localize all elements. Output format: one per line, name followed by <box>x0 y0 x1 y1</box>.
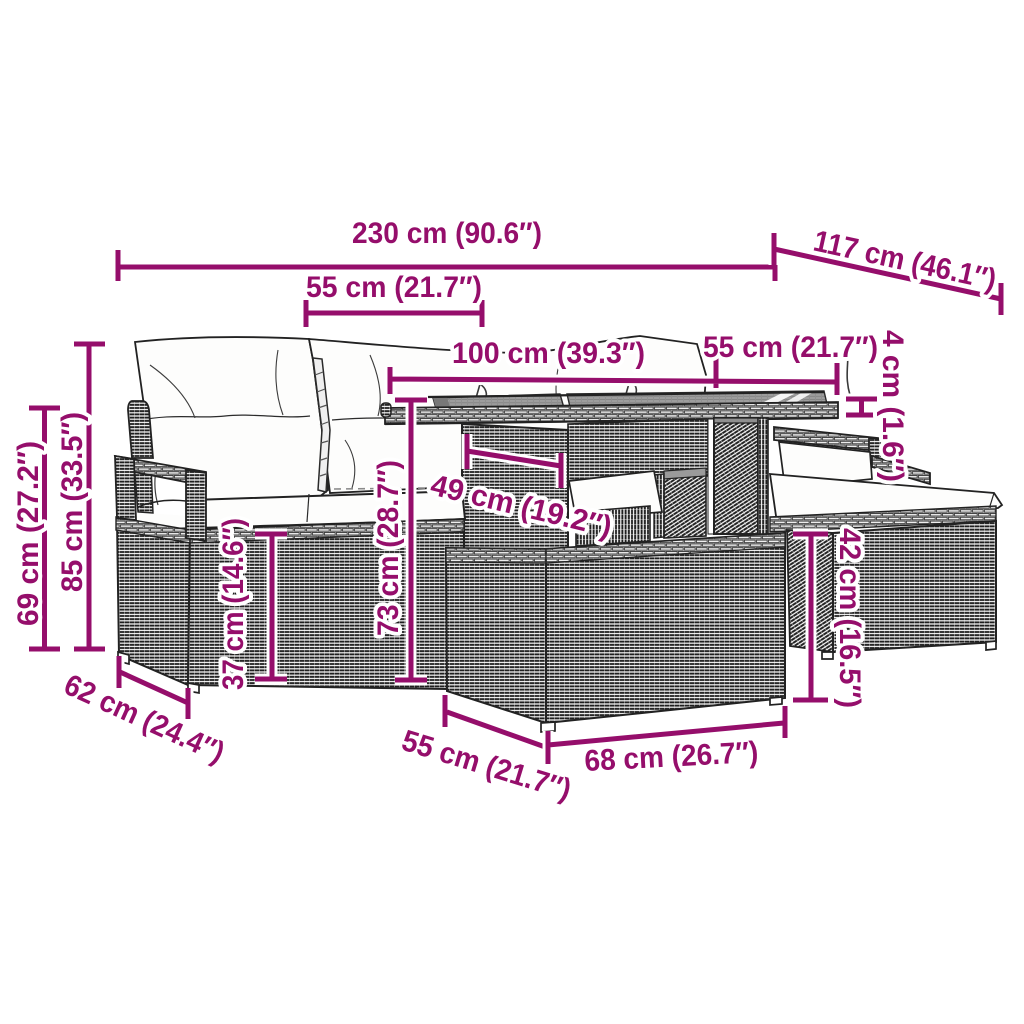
svg-text:230 cm (90.6″): 230 cm (90.6″) <box>352 217 542 250</box>
svg-text:55 cm (21.7″): 55 cm (21.7″) <box>703 331 878 364</box>
svg-text:100 cm (39.3″): 100 cm (39.3″) <box>452 337 645 370</box>
svg-text:55 cm (21.7″): 55 cm (21.7″) <box>306 271 482 304</box>
svg-text:37 cm (14.6″): 37 cm (14.6″) <box>217 518 250 690</box>
svg-text:42 cm (16.5″): 42 cm (16.5″) <box>833 528 866 708</box>
svg-text:85 cm (33.5″): 85 cm (33.5″) <box>56 412 89 592</box>
svg-text:4 cm (1.6″): 4 cm (1.6″) <box>876 330 909 482</box>
svg-text:73 cm (28.7″): 73 cm (28.7″) <box>372 460 405 636</box>
svg-text:69 cm (27.2″): 69 cm (27.2″) <box>12 441 45 626</box>
